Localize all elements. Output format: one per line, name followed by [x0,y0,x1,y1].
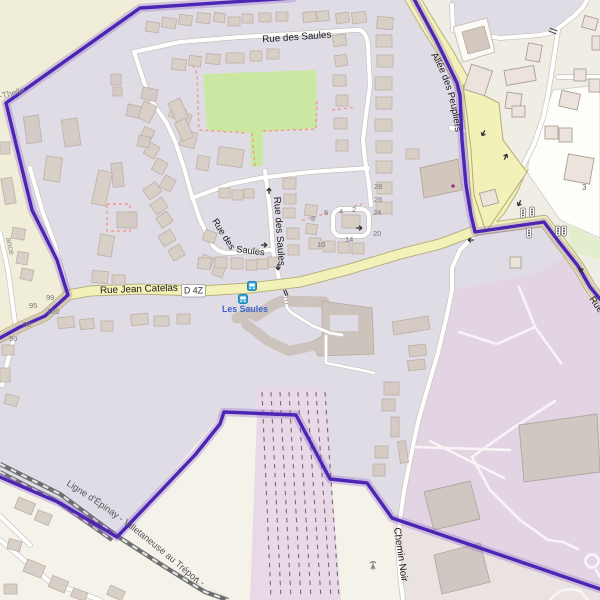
svg-text:24: 24 [373,208,381,217]
svg-text:8: 8 [311,214,315,223]
svg-text:99: 99 [46,293,54,302]
svg-text:100: 100 [47,307,60,316]
svg-text:14: 14 [345,235,353,244]
svg-text:28: 28 [374,182,382,191]
svg-text:95: 95 [29,301,37,310]
svg-text:4: 4 [339,207,343,216]
svg-text:96: 96 [9,334,17,343]
svg-text:2: 2 [352,205,356,214]
svg-text:98: 98 [23,320,31,329]
svg-text:10: 10 [317,240,325,249]
svg-text:Les Saules: Les Saules [222,304,268,314]
svg-text:3: 3 [582,183,587,192]
svg-text:26: 26 [374,195,382,204]
svg-text:20: 20 [373,229,381,238]
svg-text:6: 6 [324,208,328,217]
svg-text:D 4Z: D 4Z [184,286,204,296]
